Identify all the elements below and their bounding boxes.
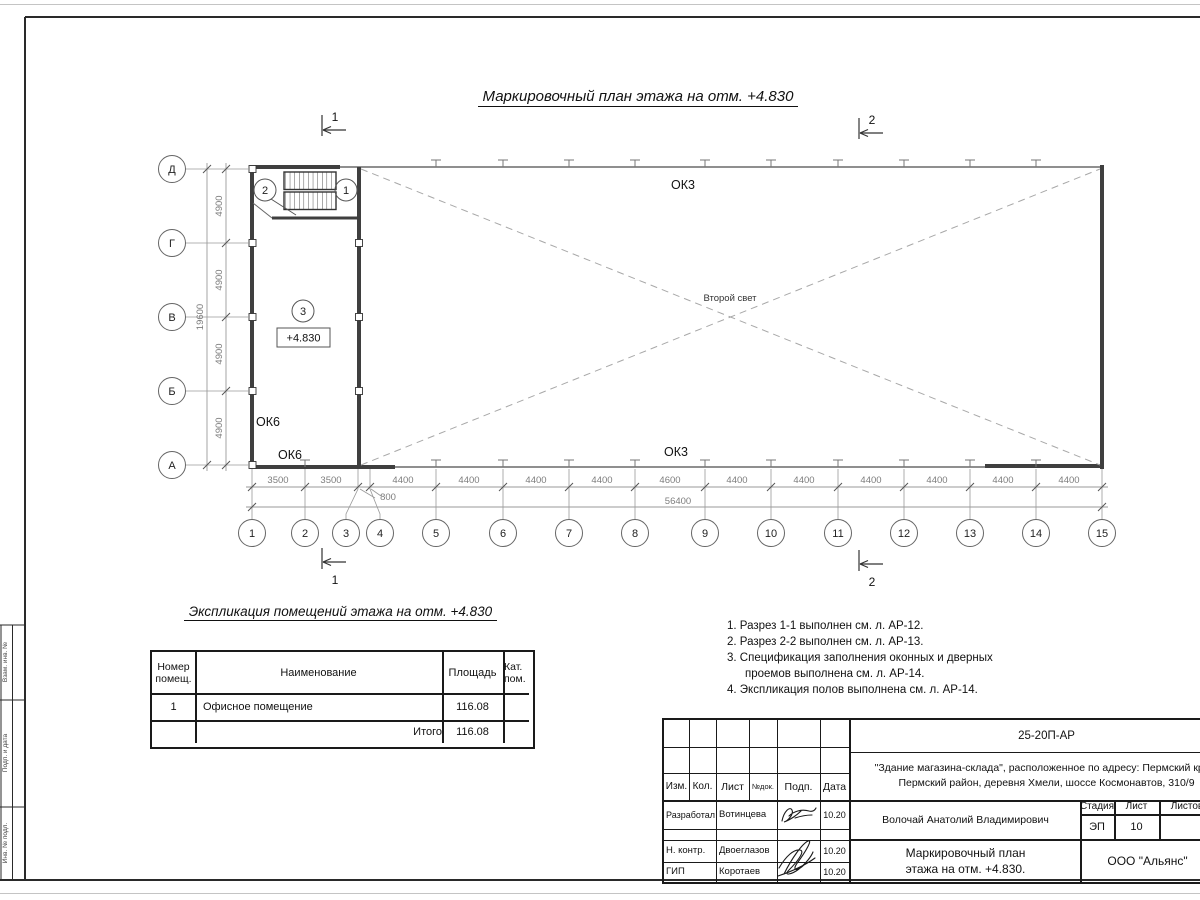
- note-3b: проемов выполнена см. л. АР-14.: [745, 668, 924, 680]
- svg-text:3500: 3500: [267, 475, 288, 486]
- dimension-total-left: 19600: [195, 304, 206, 330]
- tb-ncontr-name: Двоеглазов: [719, 840, 777, 862]
- ok6-lower-label: ОК6: [278, 448, 302, 462]
- note-3: 3. Спецификация заполнения оконных и две…: [727, 652, 993, 664]
- tb-stage-value: ЭП: [1080, 814, 1114, 839]
- svg-text:4400: 4400: [860, 475, 881, 486]
- svg-text:В: В: [168, 312, 175, 324]
- svg-text:4: 4: [377, 528, 383, 540]
- svg-text:4400: 4400: [591, 475, 612, 486]
- tb-org-name: ООО "Альянс": [1080, 839, 1200, 882]
- tb-date-1: 10.20: [820, 800, 849, 829]
- exp-row1-area: 116.08: [442, 693, 503, 720]
- exp-table-title: Экспликация помещений этажа на отм. +4.8…: [150, 604, 531, 619]
- tb-col-podp: Подп.: [777, 773, 820, 800]
- svg-text:4400: 4400: [726, 475, 747, 486]
- note-2: 2. Разрез 2-2 выполнен см. л. АР-13.: [727, 636, 924, 648]
- tb-sheet-value: 10: [1114, 814, 1159, 839]
- svg-text:10: 10: [765, 528, 777, 540]
- tb-ncontr-label: Н. контр.: [666, 840, 716, 862]
- exp-total-area: 116.08: [442, 720, 503, 743]
- exp-header-num: Номерпомещ.: [152, 652, 195, 693]
- tb-gip-label: ГИП: [666, 862, 716, 882]
- svg-text:А: А: [168, 460, 176, 472]
- svg-text:4400: 4400: [525, 475, 546, 486]
- svg-text:9: 9: [702, 528, 708, 540]
- exp-row1-num: 1: [152, 693, 195, 720]
- tb-col-izm: Изм.: [664, 773, 689, 800]
- tb-col-kol: Кол.: [689, 773, 716, 800]
- svg-text:11: 11: [832, 528, 843, 540]
- dimension-total-bottom: 56400: [665, 496, 691, 507]
- exp-row1-name: Офисное помещение: [195, 693, 450, 720]
- svg-text:4400: 4400: [392, 475, 413, 486]
- svg-text:14: 14: [1030, 528, 1042, 540]
- svg-text:Б: Б: [168, 386, 175, 398]
- room-marker-number: 3: [300, 306, 306, 318]
- tb-chief-name: Волочай Анатолий Владимирович: [851, 800, 1080, 839]
- ok6-upper-label: ОК6: [256, 415, 280, 429]
- tb-address: "Здание магазина-склада", расположенное …: [851, 752, 1200, 800]
- exp-header-cat: Кат.пом.: [503, 652, 530, 693]
- section-1-top-label: 1: [332, 110, 339, 124]
- walls: [250, 165, 1104, 469]
- tb-stage-label: Стадия: [1080, 800, 1114, 814]
- section-marks: [322, 115, 883, 571]
- svg-text:4400: 4400: [1058, 475, 1079, 486]
- svg-text:8: 8: [632, 528, 638, 540]
- svg-text:4900: 4900: [214, 343, 225, 364]
- svg-text:Д: Д: [168, 164, 176, 176]
- svg-text:3: 3: [343, 528, 349, 540]
- svg-text:6: 6: [500, 528, 506, 540]
- tb-developed-label: Разработал: [666, 800, 716, 829]
- second-light-label: Второй свет: [703, 293, 757, 304]
- tb-drawing-name: Маркировочный план этажа на отм. +4.830.: [851, 839, 1080, 882]
- svg-text:15: 15: [1096, 528, 1108, 540]
- tb-date-2: 10.20: [820, 840, 849, 862]
- svg-text:4400: 4400: [992, 475, 1013, 486]
- thin-walls: [338, 167, 1104, 467]
- elevation-label: +4.830: [287, 333, 321, 345]
- dimension-lines: [207, 163, 1108, 507]
- column-marks: [300, 160, 1041, 467]
- tb-col-ndok: №док.: [749, 773, 777, 800]
- svg-text:1: 1: [249, 528, 255, 540]
- stair-tag-left-label: 2: [262, 185, 268, 197]
- stair-tag-right-label: 1: [343, 185, 349, 197]
- title-block: Изм. Кол. Лист №док. Подп. Дата Разработ…: [662, 718, 1200, 884]
- section-2-top-label: 2: [869, 113, 876, 127]
- drawing-sheet: Взам. инв. № Подп. и дата Инв. № подл.: [0, 0, 1200, 900]
- tb-sheet-label: Лист: [1114, 800, 1159, 814]
- exp-header-name: Наименование: [195, 652, 442, 693]
- side-stamp-label-vzam: Взам. инв. №: [2, 642, 9, 682]
- note-4: 4. Экспликация полов выполнена см. л. АР…: [727, 684, 978, 696]
- svg-text:4900: 4900: [214, 269, 225, 290]
- svg-text:800: 800: [380, 492, 396, 503]
- tb-developed-name: Вотинцева: [719, 800, 777, 829]
- side-stamp-label-inv: Инв. № подл.: [2, 823, 9, 864]
- svg-text:7: 7: [566, 528, 572, 540]
- exp-table: Номерпомещ. Наименование Площадь Кат.пом…: [150, 650, 535, 749]
- note-1: 1. Разрез 1-1 выполнен см. л. АР-12.: [727, 620, 924, 632]
- tb-sheets-label: Листов: [1159, 800, 1200, 814]
- axis-bubble-labels-left: Д Г В Б А: [168, 164, 176, 472]
- exp-total-label: Итого: [195, 720, 447, 743]
- svg-text:13: 13: [964, 528, 976, 540]
- tb-doc-code: 25-20П-АР: [851, 720, 1200, 752]
- second-light-cross: [361, 169, 1100, 465]
- tb-date-3: 10.20: [820, 862, 849, 882]
- tb-col-list: Лист: [716, 773, 749, 800]
- svg-text:5: 5: [433, 528, 439, 540]
- staircase: [284, 172, 336, 210]
- svg-text:12: 12: [898, 528, 910, 540]
- svg-text:4400: 4400: [458, 475, 479, 486]
- axis-bubbles-bottom: [239, 520, 1116, 547]
- svg-text:4600: 4600: [659, 475, 680, 486]
- svg-text:Г: Г: [169, 238, 175, 250]
- door-leaf: [253, 203, 272, 218]
- svg-text:4400: 4400: [793, 475, 814, 486]
- ok3-bottom-label: ОК3: [664, 445, 688, 459]
- svg-text:2: 2: [302, 528, 308, 540]
- section-1-bottom-label: 1: [332, 573, 339, 587]
- tb-col-data: Дата: [820, 773, 849, 800]
- side-stamp-label-podp: Подп. и дата: [2, 733, 9, 772]
- plan-title: Маркировочный план этажа на отм. +4.830: [438, 88, 838, 105]
- ok3-top-label: ОК3: [671, 178, 695, 192]
- svg-text:4900: 4900: [214, 417, 225, 438]
- svg-text:4900: 4900: [214, 195, 225, 216]
- svg-text:3500: 3500: [320, 475, 341, 486]
- exp-header-area: Площадь: [442, 652, 503, 693]
- svg-text:4400: 4400: [926, 475, 947, 486]
- section-2-bottom-label: 2: [869, 575, 876, 589]
- tb-gip-name: Коротаев: [719, 862, 777, 882]
